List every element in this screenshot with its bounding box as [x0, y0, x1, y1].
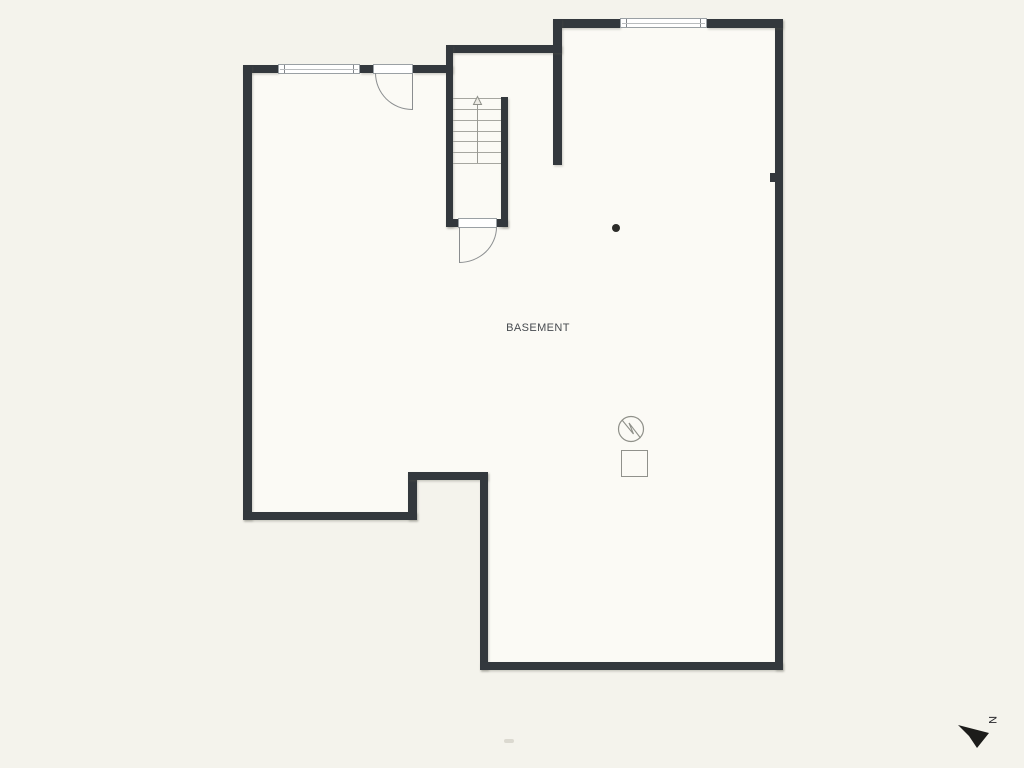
stairs-up-arrow-icon: [474, 97, 482, 105]
utility-zigzag-line: [622, 420, 641, 438]
north-arrow-icon: [958, 725, 989, 748]
symbols-layer: [0, 0, 1024, 768]
floor-plan-canvas: BASEMENT N: [0, 0, 1024, 768]
room-label-basement: BASEMENT: [468, 322, 608, 334]
column-dot-marker: [612, 224, 620, 232]
north-label: N: [988, 714, 996, 726]
utility-square-icon: [621, 450, 648, 477]
north-letter: N: [986, 716, 998, 724]
